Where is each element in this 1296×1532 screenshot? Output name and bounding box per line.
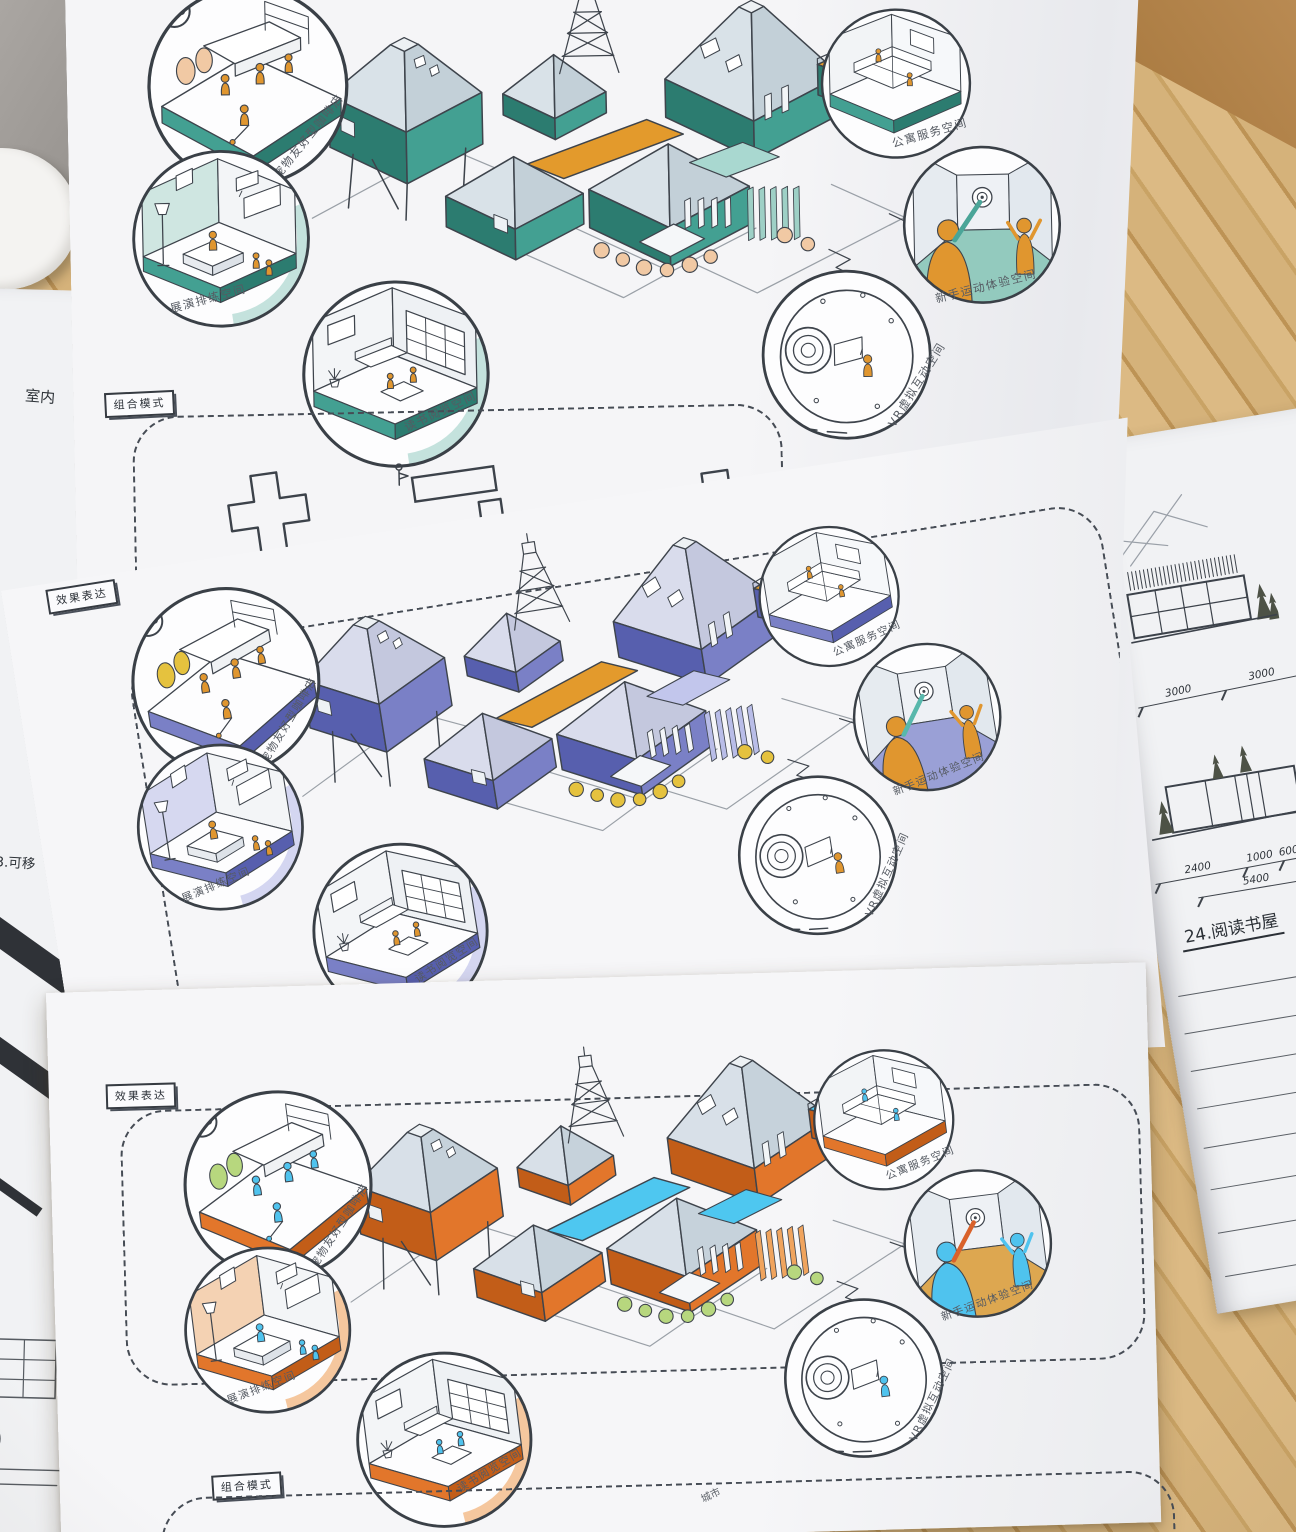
callout-vr-interactive (758, 266, 936, 444)
callout-vr-interactive (724, 762, 911, 949)
callout-vr-interactive (773, 1287, 956, 1470)
callout-performance-stage (128, 146, 314, 332)
vr-interactive-vignette (724, 762, 911, 949)
performance-stage-vignette (128, 146, 314, 332)
coffee-cup-icon (158, 0, 190, 27)
elevation-drawing-1 (1119, 543, 1285, 676)
elevation-drawing-2 (1138, 726, 1296, 866)
ruled-line (1191, 1038, 1296, 1072)
performance-stage-vignette (123, 729, 319, 925)
target-icon (972, 187, 992, 207)
drawing-stripe (0, 1139, 42, 1217)
ruled-line (1185, 1000, 1296, 1034)
dimension-value: 3000 (1219, 660, 1296, 699)
ruled-line (1225, 1243, 1296, 1277)
performance-stage-vignette (172, 1235, 363, 1426)
ruled-line (1197, 1075, 1296, 1109)
stamp-effect-expression: 效果表达 (106, 1082, 177, 1109)
dimension-value: 3000 (1135, 677, 1223, 716)
ruled-line (1218, 1199, 1296, 1233)
photo-of-architecture-sketch-sheets: 30003000 240010006001400 5400 24.阅读书屋 室内… (0, 0, 1296, 1532)
left-sheet-item-label: 23.可移 (0, 850, 36, 873)
vr-interactive-vignette (758, 266, 936, 444)
ruled-line (1178, 963, 1296, 997)
callout-performance-stage (123, 729, 319, 925)
dimension-value: 600 (1277, 843, 1296, 870)
ruled-line (1211, 1156, 1296, 1190)
stamp-combination-mode: 组合模式 (104, 390, 175, 418)
drawing-caption: 24.阅读书屋 (1178, 905, 1285, 952)
sheet-orange-content: 宠物友好型咖啡店 展演排练空间 读书阅览空间 公寓服务空间 新手运动体验空间 V… (79, 982, 1172, 1532)
left-sheet-top-label: 室内 (24, 385, 56, 408)
ruled-line (1204, 1115, 1296, 1149)
vr-interactive-vignette (773, 1287, 956, 1470)
callout-performance-stage (172, 1235, 363, 1426)
sketch-sheet-orange: 宠物友好型咖啡店 展演排练空间 读书阅览空间 公寓服务空间 新手运动体验空间 V… (46, 962, 1161, 1532)
